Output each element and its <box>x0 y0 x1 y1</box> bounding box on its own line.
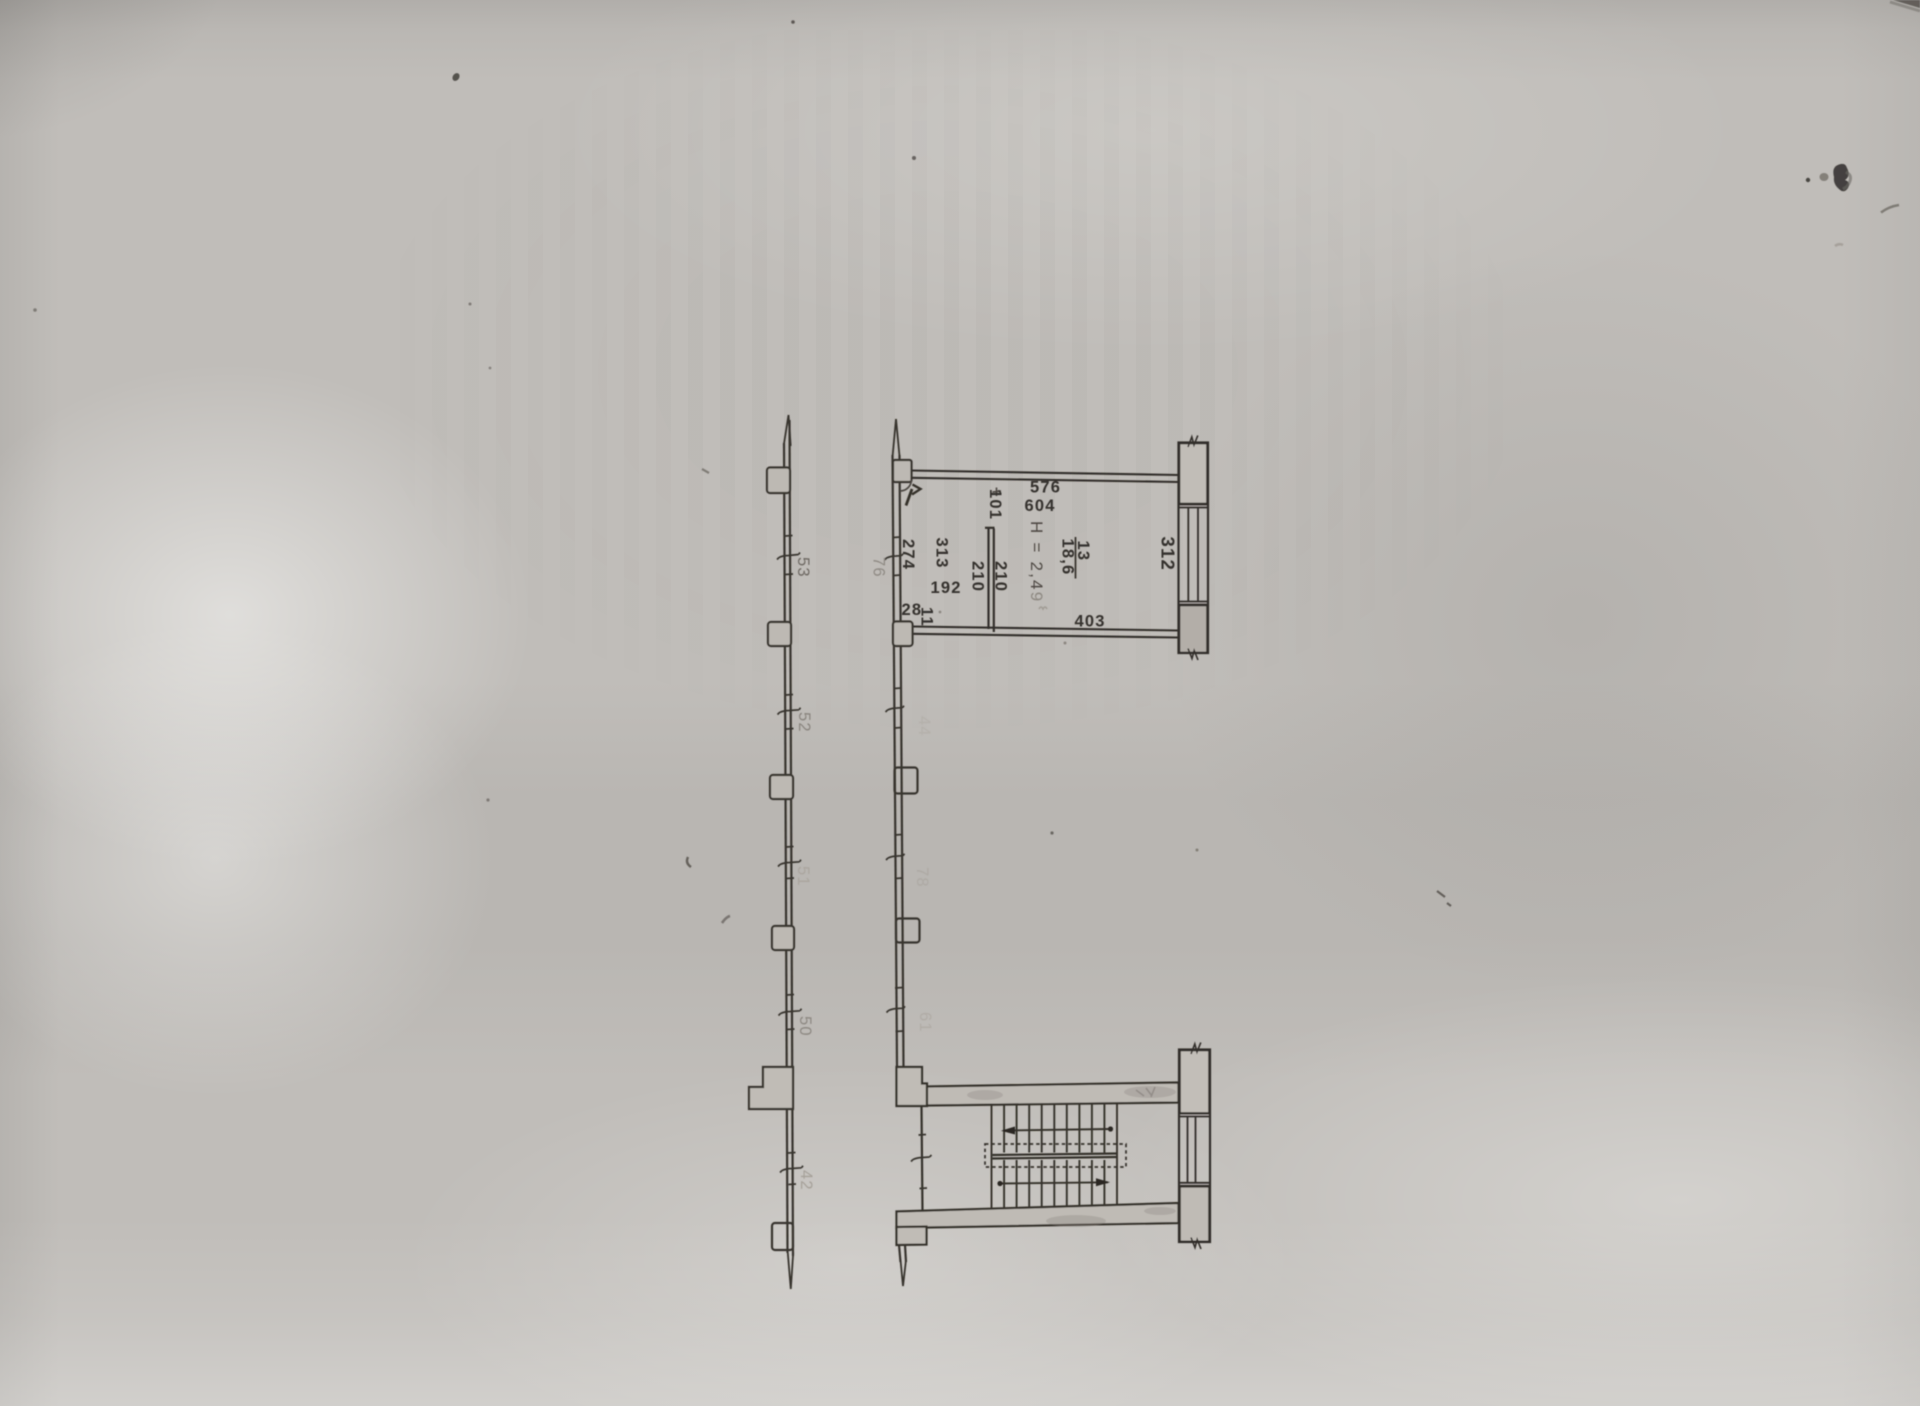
svg-text:42: 42 <box>797 1170 815 1191</box>
svg-text:604: 604 <box>1025 497 1056 515</box>
svg-text:11: 11 <box>918 607 936 627</box>
svg-text:76: 76 <box>870 557 888 578</box>
svg-text:61: 61 <box>916 1012 934 1033</box>
svg-text:210: 210 <box>992 561 1010 592</box>
svg-text:274: 274 <box>899 539 917 570</box>
svg-text:44: 44 <box>915 716 933 737</box>
svg-text:576: 576 <box>1030 479 1061 497</box>
svg-text:210: 210 <box>969 561 987 592</box>
svg-text:313: 313 <box>933 538 951 569</box>
svg-text:53: 53 <box>794 557 812 578</box>
svg-text:52: 52 <box>795 712 813 733</box>
svg-text:18,6: 18,6 <box>1059 539 1077 576</box>
svg-text:192: 192 <box>931 579 962 597</box>
svg-text:H = 2,49: H = 2,49 <box>1027 521 1046 603</box>
svg-text:403: 403 <box>1075 613 1106 631</box>
svg-text:78: 78 <box>913 867 931 888</box>
svg-text:51: 51 <box>794 866 812 887</box>
svg-text:50: 50 <box>796 1016 814 1037</box>
svg-text:312: 312 <box>1158 537 1179 571</box>
svg-text:101: 101 <box>986 489 1004 520</box>
